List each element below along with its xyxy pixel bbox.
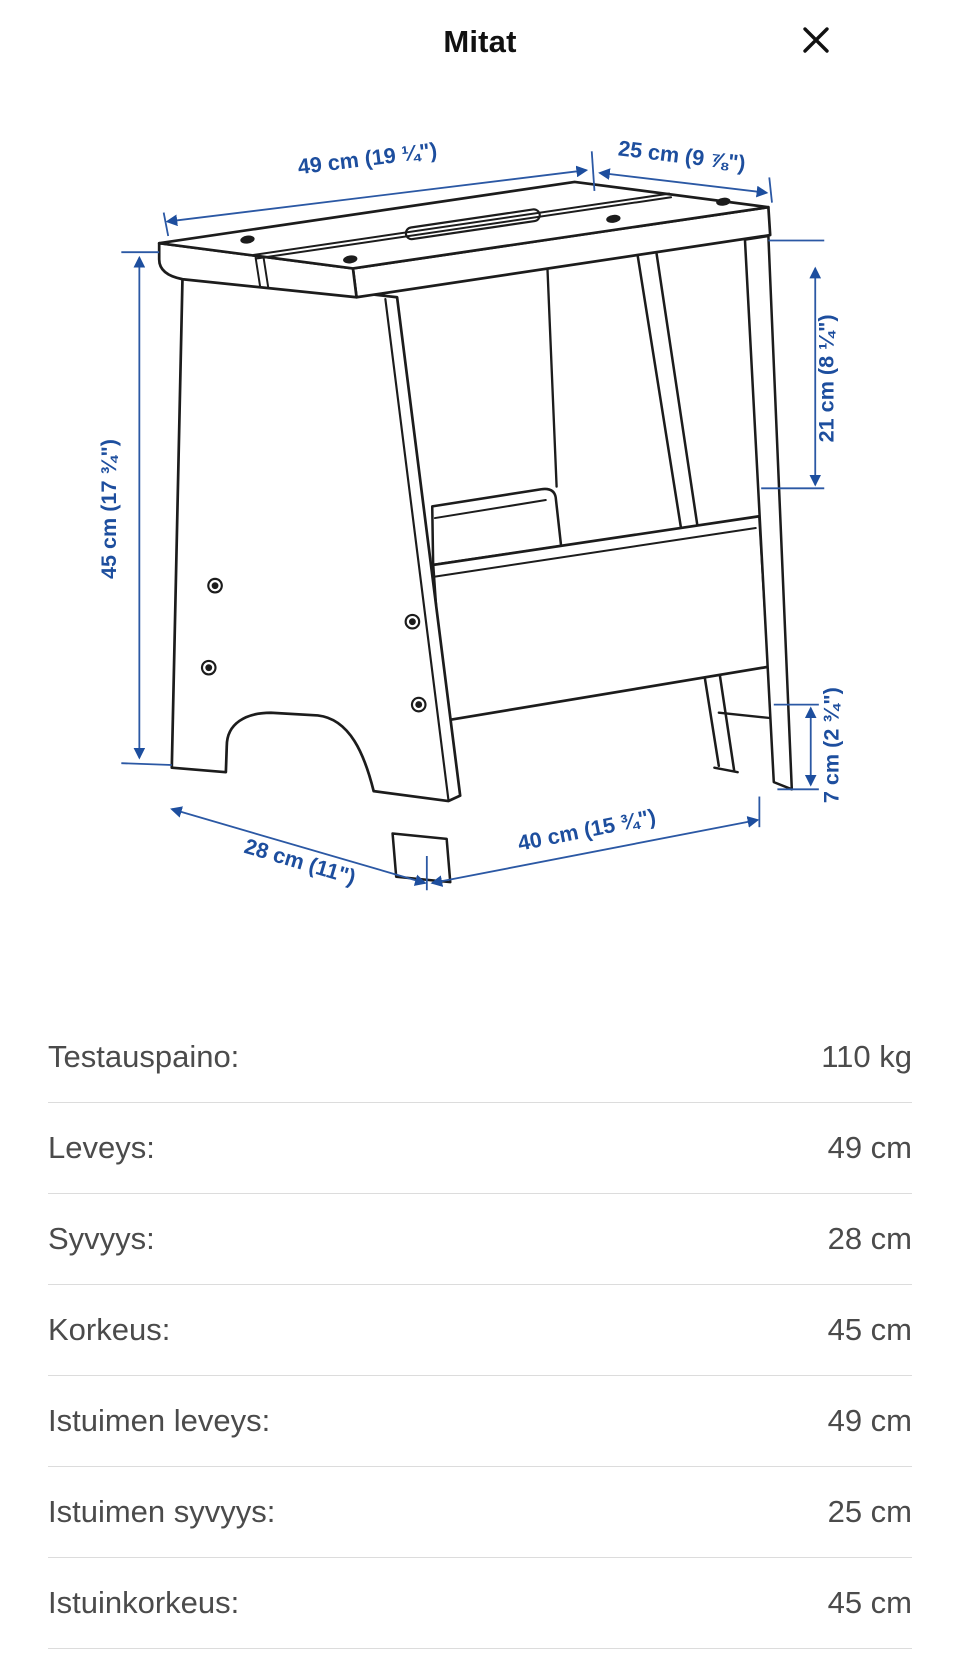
spec-label: Korkeus:	[48, 1312, 170, 1348]
dim-tick-45-bottom	[121, 763, 171, 765]
close-button[interactable]	[792, 17, 840, 65]
modal-header: Mitat	[0, 0, 960, 90]
dim-tick-25-right	[769, 177, 772, 202]
back-right-leg	[638, 256, 719, 766]
divider-foot	[393, 833, 451, 882]
dim-label-width-bottom: 40 cm (15 ¾")	[516, 804, 658, 856]
spec-value: 28 cm	[828, 1221, 912, 1257]
product-dimension-diagram: 49 cm (19 ¼") 25 cm (9 ⅞") 45 cm (17 ¾")…	[0, 90, 960, 1002]
stool-drawing: 49 cm (19 ¼") 25 cm (9 ⅞") 45 cm (17 ¾")…	[0, 90, 960, 1002]
spec-label: Istuimen leveys:	[48, 1403, 270, 1439]
spec-value: 49 cm	[828, 1130, 912, 1166]
spec-row-testauspaino: Testauspaino: 110 kg	[48, 1012, 912, 1103]
dim-label-seat-width: 49 cm (19 ¼")	[296, 137, 438, 179]
spec-value: 45 cm	[828, 1585, 912, 1621]
spec-value: 49 cm	[828, 1403, 912, 1439]
spec-value: 110 kg	[821, 1039, 912, 1075]
stool-outline	[159, 182, 792, 882]
dim-tick-49-left	[164, 213, 169, 236]
spec-row-istuimen-syvyys: Istuimen syvyys: 25 cm	[48, 1467, 912, 1558]
spec-label: Leveys:	[48, 1130, 155, 1166]
spec-value: 25 cm	[828, 1494, 912, 1530]
spec-label: Istuinkorkeus:	[48, 1585, 239, 1621]
spec-label: Testauspaino:	[48, 1039, 239, 1075]
dim-label-side-opening: 21 cm (8 ¼")	[813, 314, 838, 442]
front-right-leg	[745, 236, 792, 789]
spec-label: Syvyys:	[48, 1221, 155, 1257]
left-leg-panel	[172, 273, 460, 801]
spec-value: 45 cm	[828, 1312, 912, 1348]
spec-row-syvyys: Syvyys: 28 cm	[48, 1194, 912, 1285]
spec-row-leveys: Leveys: 49 cm	[48, 1103, 912, 1194]
spec-row-korkeus: Korkeus: 45 cm	[48, 1285, 912, 1376]
dim-label-seat-depth: 25 cm (9 ⅞")	[617, 135, 747, 175]
back-right-leg-edge	[657, 254, 735, 770]
specs-table: Testauspaino: 110 kg Leveys: 49 cm Syvyy…	[48, 1012, 912, 1649]
dim-label-foot-height: 7 cm (2 ¾")	[819, 687, 844, 803]
spec-row-istuinkorkeus: Istuinkorkeus: 45 cm	[48, 1558, 912, 1649]
close-icon	[801, 25, 831, 58]
spec-label: Istuimen syvyys:	[48, 1494, 275, 1530]
spec-row-istuimen-leveys: Istuimen leveys: 49 cm	[48, 1376, 912, 1467]
dim-label-height: 45 cm (17 ¾")	[96, 439, 121, 579]
dim-label-depth-bottom: 28 cm (11")	[242, 833, 359, 890]
dimensions-modal: Mitat	[0, 0, 960, 1679]
